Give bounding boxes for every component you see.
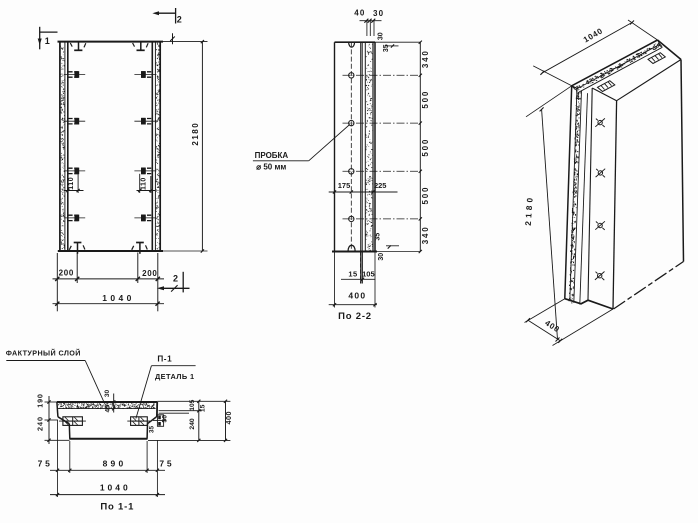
svg-text:30: 30 — [378, 253, 385, 261]
svg-text:ПРОБКА: ПРОБКА — [255, 151, 289, 160]
svg-text:240: 240 — [189, 418, 196, 430]
svg-text:105: 105 — [362, 269, 375, 278]
svg-text:15: 15 — [200, 404, 207, 412]
svg-text:200: 200 — [59, 269, 74, 278]
svg-text:По 1-1: По 1-1 — [100, 502, 134, 513]
svg-text:35: 35 — [383, 44, 390, 52]
svg-text:340: 340 — [421, 49, 430, 68]
svg-text:500: 500 — [421, 138, 430, 157]
svg-text:15: 15 — [348, 269, 357, 278]
svg-text:340: 340 — [421, 226, 430, 245]
svg-text:105: 105 — [189, 399, 196, 410]
svg-text:200: 200 — [142, 269, 157, 278]
svg-text:30: 30 — [104, 390, 111, 398]
svg-text:40: 40 — [104, 405, 111, 413]
svg-text:1: 1 — [45, 36, 50, 46]
svg-text:110: 110 — [141, 177, 148, 190]
svg-text:2: 2 — [173, 273, 178, 283]
svg-text:30: 30 — [373, 9, 384, 18]
svg-text:35: 35 — [374, 233, 381, 241]
svg-text:75: 75 — [38, 458, 53, 468]
svg-text:400: 400 — [224, 411, 233, 425]
svg-text:225: 225 — [374, 181, 387, 190]
svg-text:400: 400 — [348, 291, 366, 301]
svg-text:175: 175 — [338, 181, 351, 190]
svg-text:30: 30 — [378, 32, 385, 40]
svg-text:35: 35 — [149, 426, 156, 434]
svg-text:2: 2 — [177, 15, 182, 25]
svg-text:По 2-2: По 2-2 — [338, 311, 372, 322]
svg-text:2180: 2180 — [191, 122, 200, 146]
svg-text:1040: 1040 — [102, 293, 135, 303]
svg-text:500: 500 — [421, 186, 430, 205]
svg-text:75: 75 — [159, 458, 174, 468]
svg-text:ФАКТУРНЫЙ СЛОЙ: ФАКТУРНЫЙ СЛОЙ — [6, 348, 81, 357]
svg-text:50: 50 — [161, 415, 168, 423]
svg-text:1040: 1040 — [100, 482, 131, 492]
svg-text:190: 190 — [36, 393, 45, 407]
svg-text:890: 890 — [103, 458, 127, 468]
svg-text:ДЕТАЛЬ 1: ДЕТАЛЬ 1 — [155, 372, 195, 381]
svg-text:500: 500 — [421, 90, 430, 109]
svg-text:⌀ 50 мм: ⌀ 50 мм — [256, 162, 286, 171]
svg-text:240: 240 — [36, 416, 45, 431]
svg-text:110: 110 — [68, 177, 75, 190]
svg-text:40: 40 — [354, 9, 365, 18]
svg-text:П-1: П-1 — [157, 355, 172, 364]
